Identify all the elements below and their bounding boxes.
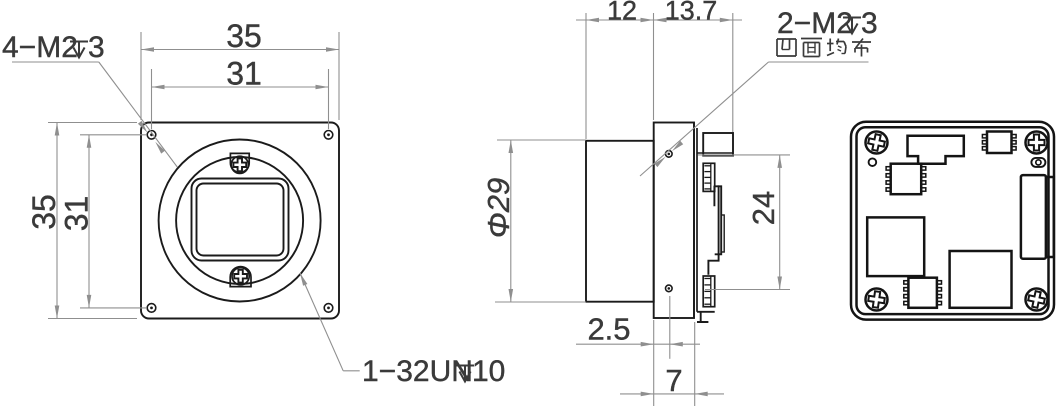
svg-text:10: 10 (472, 355, 505, 388)
svg-text:1−32UN: 1−32UN (362, 355, 473, 388)
svg-text:24: 24 (746, 191, 781, 225)
svg-text:7: 7 (665, 363, 682, 398)
svg-text:31: 31 (59, 196, 95, 232)
svg-text:2.5: 2.5 (587, 312, 630, 347)
svg-text:12: 12 (607, 0, 637, 26)
svg-text:35: 35 (26, 194, 62, 230)
svg-text:3: 3 (88, 31, 105, 64)
svg-text:4−M2: 4−M2 (2, 31, 78, 64)
svg-text:2−M2: 2−M2 (777, 7, 853, 40)
svg-text:3: 3 (861, 7, 878, 40)
svg-text:31: 31 (226, 56, 262, 92)
svg-text:13.7: 13.7 (665, 0, 718, 26)
svg-text:Φ29: Φ29 (481, 178, 516, 238)
svg-text:35: 35 (226, 18, 262, 54)
